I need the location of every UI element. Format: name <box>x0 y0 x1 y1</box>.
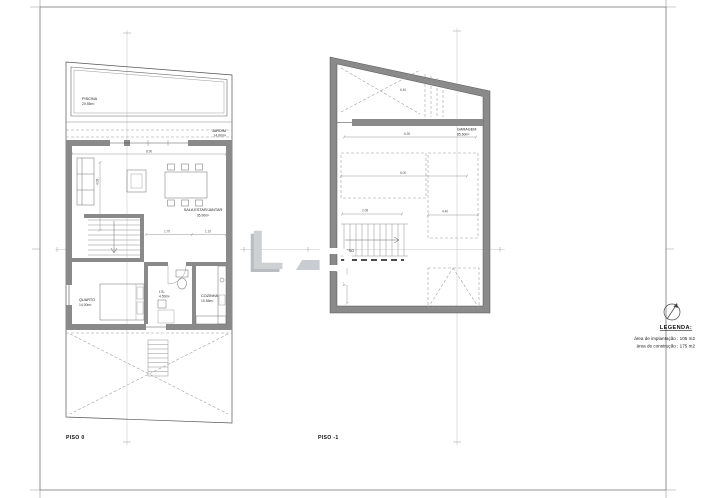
watermark-letter: L <box>250 222 284 278</box>
dimension-lines <box>340 136 479 305</box>
dimension-label: 6.40 <box>400 88 406 92</box>
floor-plan-piso-0: PISCINA 20.55m² JARDIM 14.60m² SALA ESTA… <box>66 62 232 441</box>
legend-item: área de construção : 175 m2 <box>637 344 696 349</box>
divider-wall <box>337 119 483 126</box>
parking-bays <box>341 153 478 238</box>
dimension-lines <box>71 153 227 237</box>
room-label: COZINHA <box>201 294 219 298</box>
room-label: SALA ESTAR/JANTAR <box>184 208 223 212</box>
room-label: I.S. <box>159 290 165 294</box>
room-label: GARAGEM <box>457 128 476 132</box>
room-area: 35.90m² <box>197 214 210 218</box>
dimension-label: 6.00 <box>400 171 406 175</box>
dimension-label: 2.08 <box>362 209 368 213</box>
bed <box>100 284 144 320</box>
rear-yard <box>66 333 232 414</box>
drawing-sheet: PISCINA 20.55m² JARDIM 14.60m² SALA ESTA… <box>0 0 705 498</box>
room-area: 14.00m² <box>79 303 92 307</box>
room-area: 10.55m² <box>201 299 214 303</box>
stairs <box>88 220 140 255</box>
watermark-letter: R <box>316 240 355 294</box>
sofa <box>77 158 94 205</box>
room-area: 14.60m² <box>214 134 227 138</box>
plan-title-piso-0: PISO 0 <box>66 435 85 441</box>
dimension-label: 6.90 <box>404 132 410 136</box>
pool <box>71 67 227 116</box>
dimension-label: 4.40 <box>442 210 448 214</box>
exterior-stairs <box>148 340 168 376</box>
plan-title-piso-minus-1: PISO -1 <box>318 435 339 441</box>
dining-table <box>165 164 207 206</box>
dimension-label: 8.90 <box>146 150 152 154</box>
room-label: QUARTO <box>79 298 95 302</box>
room-label: PISCINA <box>82 97 98 101</box>
room-label: JARDIM <box>212 129 226 133</box>
legend-item: área de implantação : 105 m2 <box>634 336 695 341</box>
room-area: 4.50m² <box>159 295 170 299</box>
dimension-label: 4.08 <box>96 179 100 185</box>
room-area: 85.60m² <box>457 133 470 137</box>
room-area: 20.55m² <box>82 102 95 106</box>
coffee-table <box>127 170 146 192</box>
north-arrow-icon <box>664 303 680 320</box>
dimension-label: 1.70 <box>164 230 170 234</box>
legend-title: LEGENDA: <box>660 325 692 331</box>
legend: LEGENDA: área de implantação : 105 m2 ár… <box>634 303 695 349</box>
terrace-lines <box>66 122 232 137</box>
dimension-label: 1.10 <box>205 230 211 234</box>
garage-door-swing <box>428 268 479 308</box>
